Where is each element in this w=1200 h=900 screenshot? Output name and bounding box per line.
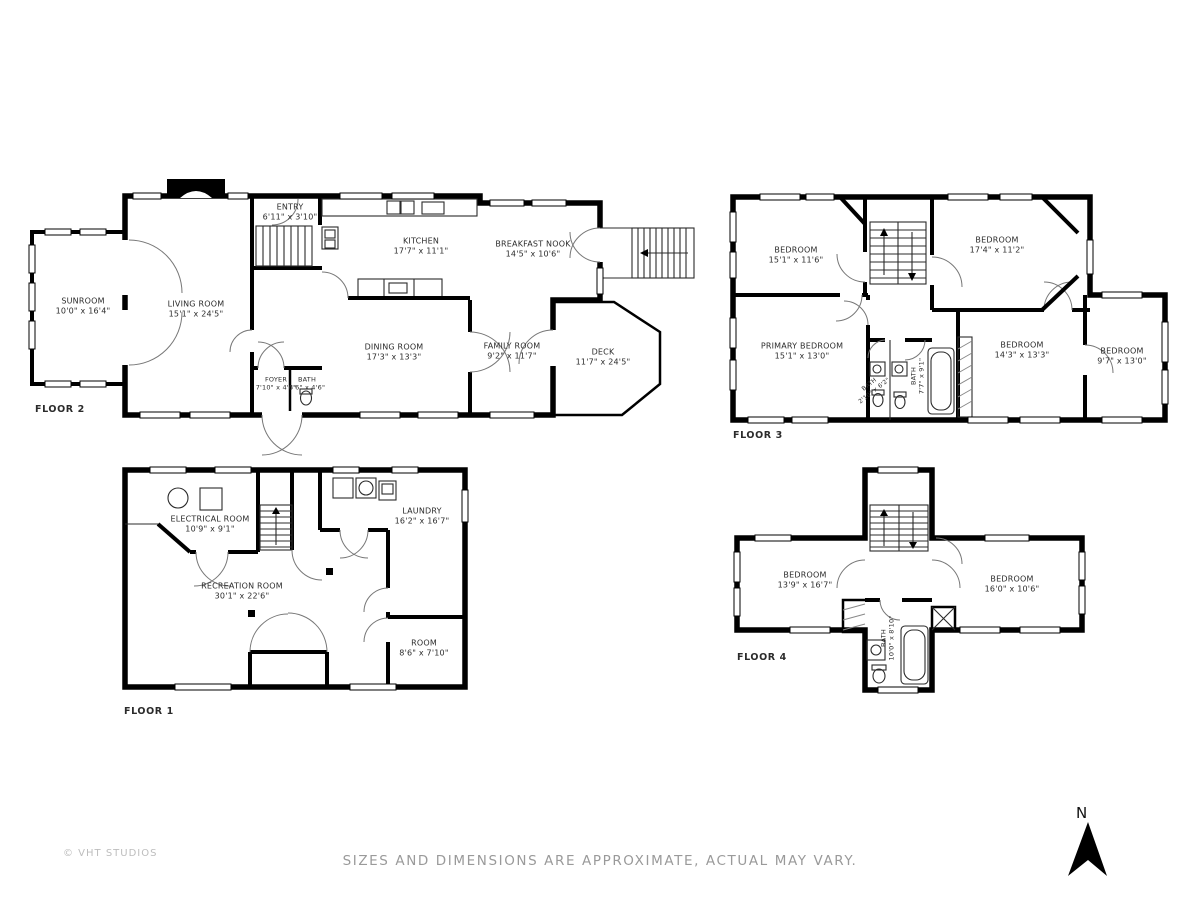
room-label-living-room: LIVING ROOM15'1" x 24'5"	[168, 300, 225, 321]
floor1-room	[364, 588, 465, 687]
room-label-primary-bedroom: PRIMARY BEDROOM15'1" x 13'0"	[761, 342, 843, 363]
floor2-plan	[29, 179, 694, 455]
closet-hatch	[958, 337, 972, 417]
floor4-closet	[843, 600, 865, 632]
room-label-bath-floor2: BATH3'6" x 4'6"	[289, 376, 325, 393]
room-label-bedroom2: BEDROOM17'4" x 11'2"	[970, 236, 1025, 257]
floorplan-drawing	[0, 0, 1200, 900]
floor3-stairs	[870, 222, 926, 284]
room-label-bath-floor3: BATH7'7" x 9'1"	[910, 358, 927, 394]
room-label-sunroom: SUNROOM10'0" x 16'4"	[56, 297, 111, 318]
room-label-deck: DECK11'7" x 24'5"	[576, 348, 631, 369]
post	[326, 568, 333, 575]
room-label-breakfast-nook: BREAKFAST NOOK14'5" x 10'6"	[495, 240, 570, 261]
floor3-plan	[730, 194, 1168, 423]
room-label-dining-room: DINING ROOM17'3" x 13'3"	[365, 343, 424, 364]
room-label-family-room: FAMILY ROOM9'2" x 11'7"	[484, 342, 541, 363]
room-label-recreation-room: RECREATION ROOM30'1" x 22'6"	[201, 582, 283, 603]
room-label-bedroom4: BEDROOM9'7" x 13'0"	[1097, 347, 1146, 368]
room-label-room: ROOM8'6" x 7'10"	[399, 639, 448, 660]
floor4-stairs	[870, 505, 928, 551]
floor4-bath	[865, 600, 932, 684]
floor2-caption: FLOOR 2	[35, 404, 85, 415]
deck-stairs	[600, 228, 694, 278]
room-label-bedroom6: BEDROOM16'0" x 10'6"	[985, 575, 1040, 596]
room-label-bedroom5: BEDROOM13'9" x 16'7"	[778, 571, 833, 592]
room-label-entry: ENTRY6'11" x 3'10"	[263, 203, 318, 224]
floor4-caption: FLOOR 4	[737, 652, 787, 663]
floor1-closet	[250, 613, 327, 687]
floor1-stairs	[260, 470, 322, 580]
room-label-electrical-room: ELECTRICAL ROOM10'9" x 9'1"	[170, 515, 249, 536]
compass-north-label: N	[1076, 804, 1087, 822]
room-label-bedroom1: BEDROOM15'1" x 11'6"	[769, 246, 824, 267]
floor1-caption: FLOOR 1	[124, 706, 174, 717]
door-arc	[129, 240, 182, 293]
floor3-caption: FLOOR 3	[733, 430, 783, 441]
room-label-kitchen: KITCHEN17'7" x 11'1"	[394, 237, 449, 258]
room-label-bath-floor4: BATH10'0" x 8'10"	[880, 616, 897, 661]
x-closet	[932, 607, 955, 630]
room-label-laundry: LAUNDRY16'2" x 16'7"	[395, 507, 450, 528]
floorplan-page: SUNROOM10'0" x 16'4" LIVING ROOM15'1" x …	[0, 0, 1200, 900]
room-label-bedroom3: BEDROOM14'3" x 13'3"	[995, 341, 1050, 362]
post	[248, 610, 255, 617]
fireplace	[167, 179, 225, 198]
disclaimer-text: SIZES AND DIMENSIONS ARE APPROXIMATE, AC…	[0, 853, 1200, 869]
